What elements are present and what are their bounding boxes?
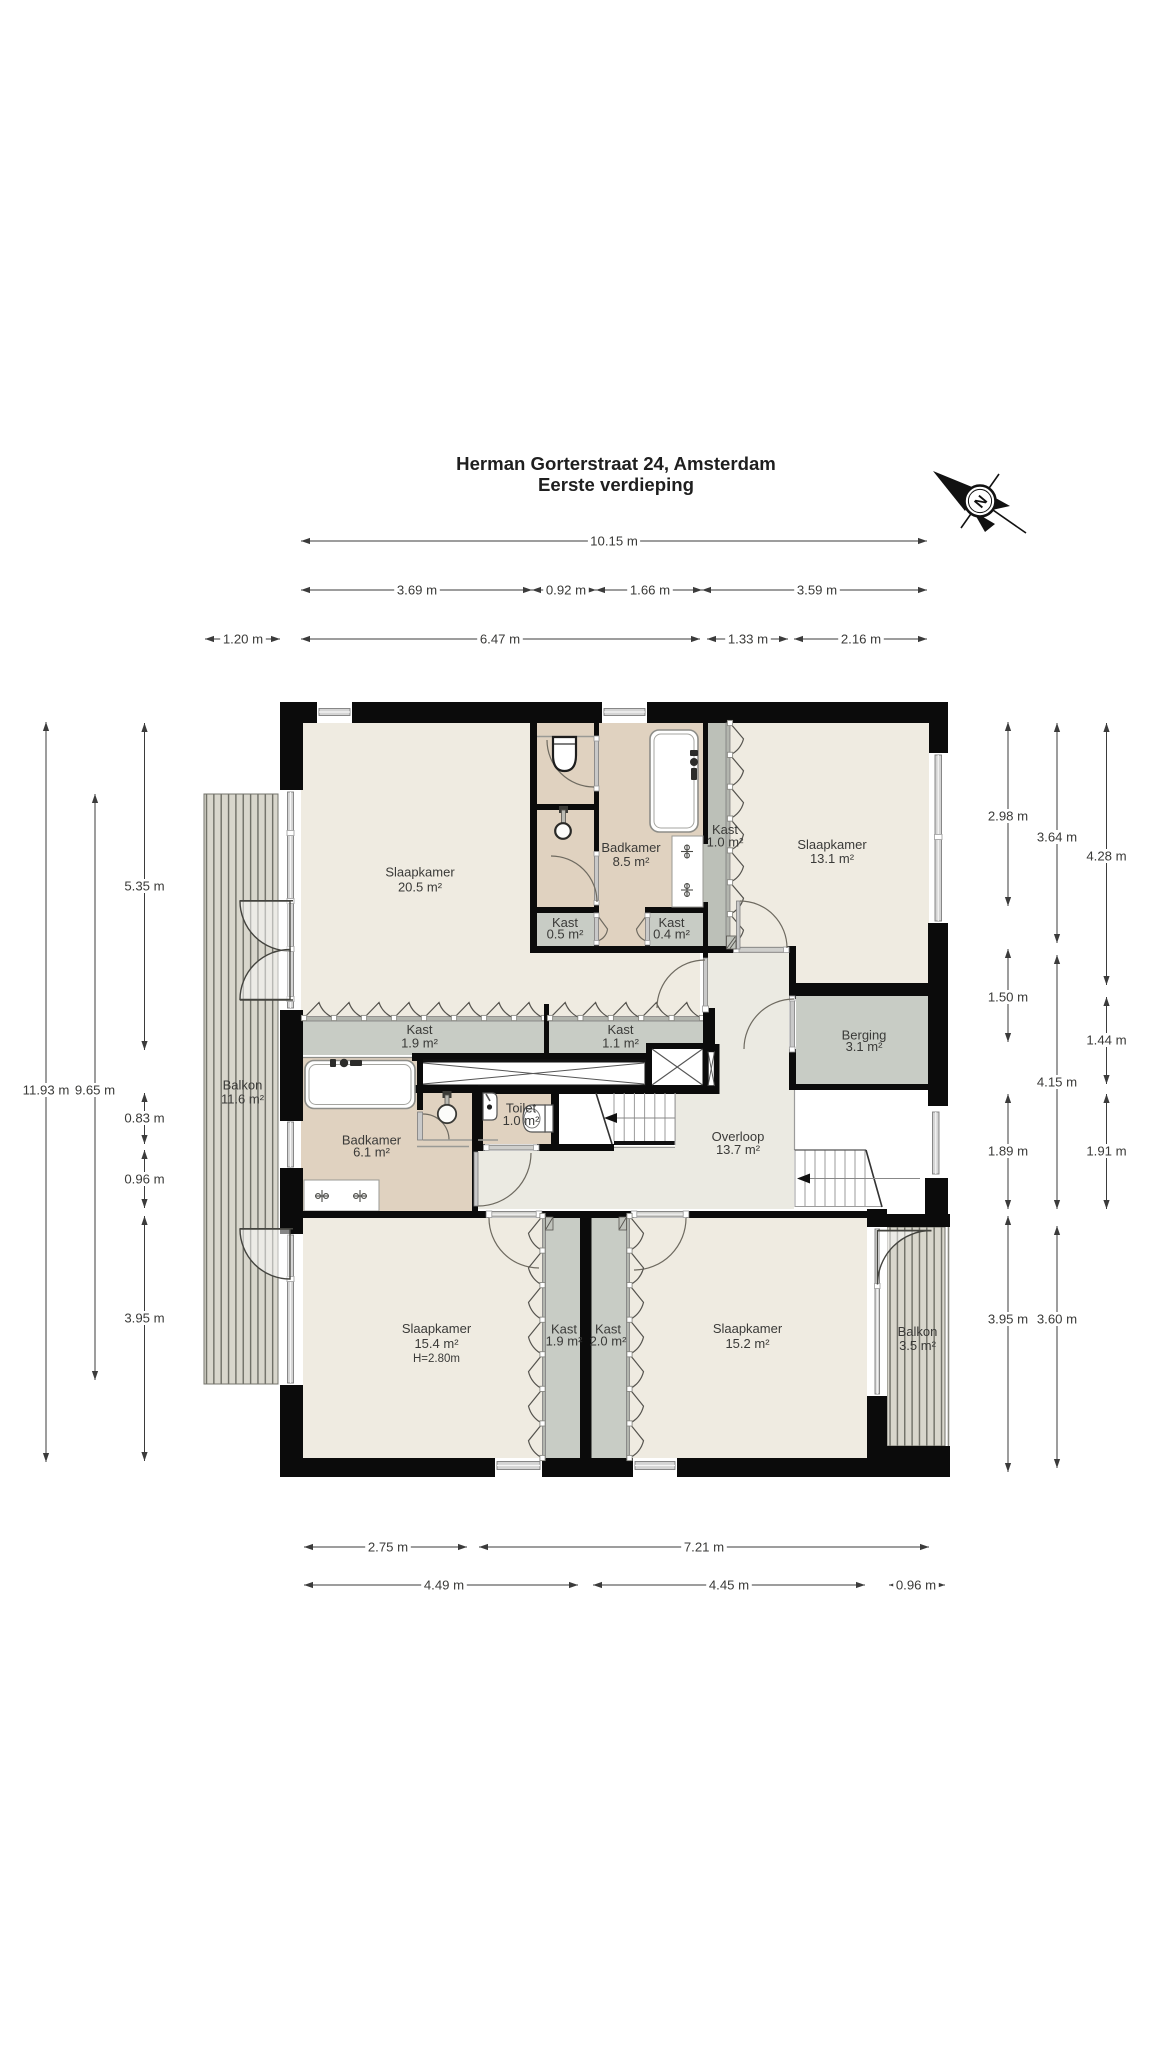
svg-text:Balkon: Balkon (898, 1324, 938, 1339)
svg-text:1.33 m: 1.33 m (728, 631, 768, 646)
svg-text:20.5 m²: 20.5 m² (398, 880, 443, 895)
svg-text:1.44 m: 1.44 m (1086, 1032, 1126, 1047)
svg-text:9.65 m: 9.65 m (75, 1082, 115, 1097)
svg-text:4.15 m: 4.15 m (1037, 1074, 1077, 1089)
svg-text:4.28 m: 4.28 m (1086, 848, 1126, 863)
svg-text:0.5 m²: 0.5 m² (547, 927, 585, 942)
svg-text:15.4 m²: 15.4 m² (414, 1336, 459, 1351)
svg-text:7.21 m: 7.21 m (684, 1539, 724, 1554)
svg-text:H=2.80m: H=2.80m (413, 1353, 460, 1365)
svg-text:1.89 m: 1.89 m (988, 1143, 1028, 1158)
svg-text:0.92 m: 0.92 m (546, 582, 586, 597)
svg-text:2.0 m²: 2.0 m² (590, 1334, 628, 1349)
svg-text:0.96 m: 0.96 m (896, 1577, 936, 1592)
svg-text:0.83 m: 0.83 m (124, 1110, 164, 1125)
svg-text:1.0 m²: 1.0 m² (707, 835, 745, 850)
svg-text:6.1 m²: 6.1 m² (353, 1145, 391, 1160)
svg-text:Slaapkamer: Slaapkamer (402, 1321, 472, 1336)
svg-text:3.5 m²: 3.5 m² (899, 1338, 937, 1353)
svg-text:Eerste verdieping: Eerste verdieping (538, 474, 694, 495)
svg-text:13.1 m²: 13.1 m² (810, 851, 855, 866)
svg-text:11.6 m²: 11.6 m² (221, 1092, 265, 1107)
svg-text:3.69 m: 3.69 m (397, 582, 437, 597)
svg-text:11.93 m: 11.93 m (23, 1082, 70, 1097)
svg-text:15.2 m²: 15.2 m² (725, 1336, 770, 1351)
svg-text:6.47 m: 6.47 m (480, 631, 520, 646)
svg-text:Balkon: Balkon (223, 1078, 263, 1093)
svg-text:Slaapkamer: Slaapkamer (713, 1321, 783, 1336)
svg-text:1.9 m²: 1.9 m² (401, 1036, 439, 1051)
svg-text:0.96 m: 0.96 m (124, 1171, 164, 1186)
svg-text:1.50 m: 1.50 m (988, 989, 1028, 1004)
svg-text:2.16 m: 2.16 m (841, 631, 881, 646)
svg-text:Slaapkamer: Slaapkamer (797, 837, 867, 852)
svg-text:0.4 m²: 0.4 m² (653, 927, 691, 942)
svg-text:5.35 m: 5.35 m (124, 878, 164, 893)
svg-text:1.0 m²: 1.0 m² (503, 1113, 541, 1128)
svg-text:4.49 m: 4.49 m (424, 1577, 464, 1592)
svg-text:3.95 m: 3.95 m (988, 1311, 1028, 1326)
svg-text:3.60 m: 3.60 m (1037, 1311, 1077, 1326)
svg-text:3.64 m: 3.64 m (1037, 829, 1077, 844)
svg-text:8.5 m²: 8.5 m² (613, 854, 651, 869)
svg-text:1.9 m²: 1.9 m² (546, 1334, 584, 1349)
svg-text:Badkamer: Badkamer (601, 840, 661, 855)
svg-text:2.75 m: 2.75 m (368, 1539, 408, 1554)
svg-text:4.45 m: 4.45 m (709, 1577, 749, 1592)
svg-text:Herman Gorterstraat 24, Amster: Herman Gorterstraat 24, Amsterdam (456, 453, 776, 474)
svg-text:1.91 m: 1.91 m (1086, 1143, 1126, 1158)
svg-text:2.98 m: 2.98 m (988, 808, 1028, 823)
svg-text:1.1 m²: 1.1 m² (602, 1036, 640, 1051)
svg-text:10.15 m: 10.15 m (590, 533, 638, 548)
svg-text:Slaapkamer: Slaapkamer (385, 865, 455, 880)
svg-text:3.59 m: 3.59 m (797, 582, 837, 597)
svg-text:3.95 m: 3.95 m (124, 1310, 164, 1325)
svg-text:1.20 m: 1.20 m (223, 631, 263, 646)
svg-text:1.66 m: 1.66 m (630, 582, 670, 597)
svg-text:13.7 m²: 13.7 m² (716, 1142, 761, 1157)
svg-text:3.1 m²: 3.1 m² (846, 1039, 884, 1054)
